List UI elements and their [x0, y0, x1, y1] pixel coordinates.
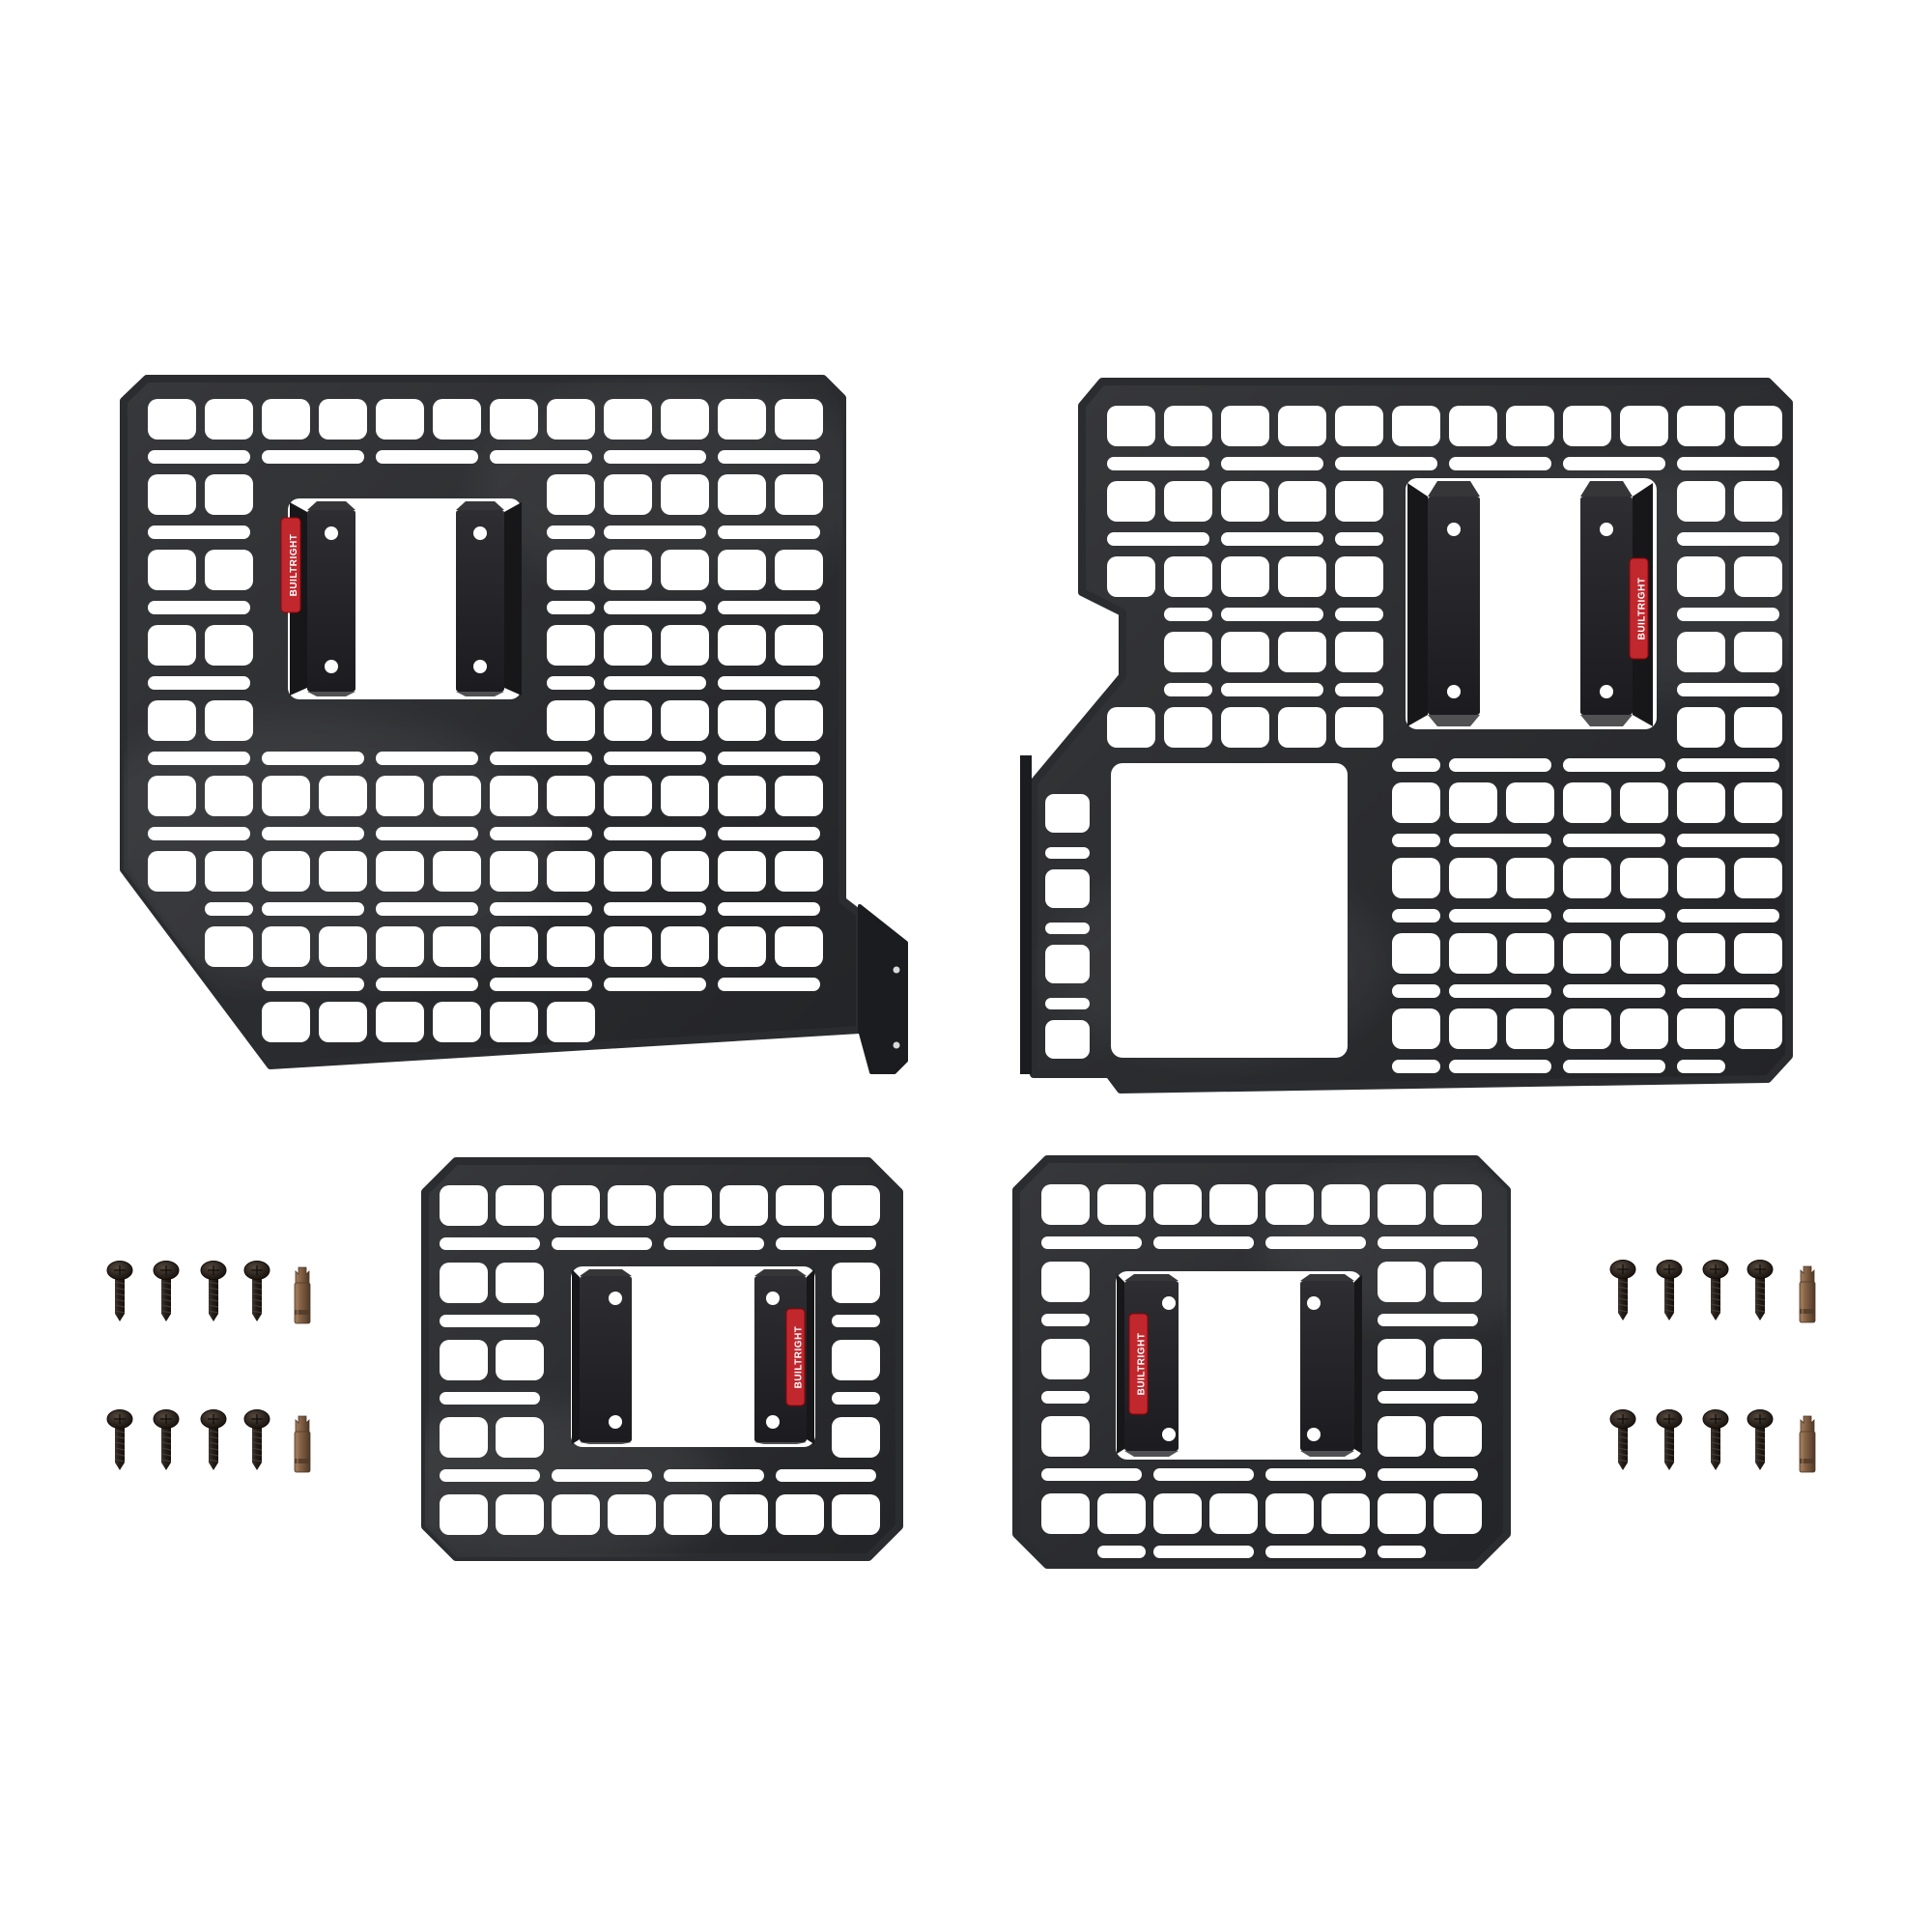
molle-hole — [1392, 406, 1440, 446]
molle-slot — [718, 601, 820, 614]
mounting-bracket: BUILTRIGHT — [281, 501, 355, 696]
molle-hole — [319, 776, 367, 816]
bracket-bolt-hole — [1162, 1428, 1176, 1441]
molle-hole — [496, 1263, 544, 1303]
bracket-bolt-hole — [1600, 523, 1613, 536]
hardware-cluster-left — [107, 1262, 310, 1473]
molle-slot — [1335, 608, 1383, 621]
molle-hole — [1734, 858, 1782, 898]
molle-slot — [1335, 532, 1383, 546]
molle-hole — [661, 700, 709, 741]
molle-hole — [205, 700, 253, 741]
molle-slot — [1265, 1236, 1366, 1249]
molle-hole — [1378, 1262, 1426, 1302]
molle-hole — [262, 851, 310, 892]
mounting-screw — [244, 1262, 270, 1322]
molle-hole — [319, 926, 367, 967]
molle-hole — [661, 474, 709, 515]
molle-slot — [1265, 1468, 1366, 1481]
molle-slot — [148, 827, 250, 840]
mounting-bracket: BUILTRIGHT — [754, 1269, 814, 1444]
molle-hole — [552, 1494, 600, 1535]
molle-slot — [718, 827, 820, 840]
molle-hole — [775, 776, 823, 816]
molle-hole — [1164, 707, 1212, 748]
mounting-screw — [107, 1410, 132, 1471]
molle-slot — [604, 601, 706, 614]
molle-hole — [661, 550, 709, 590]
molle-slot — [1107, 532, 1209, 546]
molle-slot — [1221, 608, 1323, 621]
molle-hole — [718, 399, 766, 440]
molle-hole — [1221, 707, 1269, 748]
torx-driver-bit — [295, 1267, 310, 1323]
molle-slot — [1677, 457, 1779, 470]
flange-hole — [894, 1042, 900, 1049]
molle-hole — [1506, 782, 1554, 823]
molle-hole — [1563, 782, 1611, 823]
molle-panel-bottom-left: BUILTRIGHT — [357, 1161, 899, 1570]
molle-hole — [148, 399, 196, 440]
molle-slot — [1335, 683, 1383, 696]
molle-panel-top-right: BUILTRIGHT — [1020, 382, 1845, 1090]
molle-slot — [1164, 683, 1212, 696]
mounting-screw — [154, 1262, 179, 1322]
molle-hole — [776, 1185, 824, 1226]
bracket-bolt-hole — [1600, 685, 1613, 698]
mounting-screw — [154, 1410, 179, 1471]
molle-hole — [1677, 858, 1725, 898]
molle-hole — [775, 474, 823, 515]
bracket-bolt-hole — [325, 526, 338, 540]
mounting-bracket: BUILTRIGHT — [1580, 481, 1653, 726]
molle-slot — [490, 752, 592, 765]
molle-hole — [1677, 556, 1725, 597]
molle-hole — [1164, 406, 1212, 446]
molle-slot — [1221, 683, 1323, 696]
molle-slot — [440, 1315, 540, 1327]
molle-hole — [1506, 1008, 1554, 1049]
molle-slot — [148, 450, 250, 464]
molle-hole — [1449, 406, 1497, 446]
molle-hole — [1563, 406, 1611, 446]
molle-slot — [490, 978, 592, 991]
molle-hole — [1265, 1493, 1314, 1534]
bracket-bolt-hole — [1307, 1296, 1321, 1310]
molle-hole — [440, 1494, 488, 1535]
molle-hole — [547, 851, 595, 892]
molle-slot — [262, 978, 364, 991]
molle-hole — [1378, 1339, 1426, 1379]
molle-hole — [1506, 406, 1554, 446]
molle-hole — [148, 776, 196, 816]
molle-slot — [1378, 1236, 1478, 1249]
molle-hole — [440, 1340, 488, 1380]
molle-slot — [1677, 1060, 1725, 1073]
mounting-bracket — [456, 501, 522, 696]
molle-hole — [604, 700, 652, 741]
bracket-bolt-hole — [609, 1415, 622, 1429]
molle-hole — [1335, 632, 1383, 672]
mounting-screw — [201, 1410, 226, 1471]
molle-slot — [1221, 532, 1323, 546]
molle-hole — [661, 399, 709, 440]
molle-hole — [205, 926, 253, 967]
molle-hole — [547, 926, 595, 967]
molle-hole — [490, 1002, 538, 1042]
molle-hole — [1434, 1262, 1482, 1302]
molle-hole — [376, 776, 424, 816]
molle-slot — [1045, 847, 1090, 859]
molle-slot — [1449, 1060, 1551, 1073]
molle-slot — [552, 1237, 652, 1250]
molle-slot — [604, 978, 706, 991]
scene-svg: BUILTRIGHTBUILTRIGHTBUILTRIGHTBUILTRIGHT — [0, 0, 1932, 1931]
molle-slot — [776, 1469, 876, 1482]
molle-slot — [664, 1237, 764, 1250]
molle-slot — [1563, 758, 1665, 772]
molle-hole — [1041, 1416, 1090, 1457]
molle-hole — [718, 851, 766, 892]
molle-hole — [376, 926, 424, 967]
molle-hole — [1378, 1416, 1426, 1457]
molle-hole — [1164, 632, 1212, 672]
molle-hole — [1734, 481, 1782, 522]
molle-hole — [440, 1185, 488, 1226]
molle-slot — [1677, 984, 1779, 998]
molle-hole — [1335, 481, 1383, 522]
torx-driver-bit — [295, 1416, 310, 1472]
molle-slot — [604, 450, 706, 464]
molle-slot — [262, 752, 364, 765]
builtright-label-text: BUILTRIGHT — [289, 534, 299, 597]
panel-cutout — [1111, 763, 1348, 1058]
molle-slot — [1097, 1546, 1146, 1558]
molle-hole — [1378, 1493, 1426, 1534]
molle-hole — [1677, 933, 1725, 974]
molle-slot — [1449, 909, 1551, 923]
mounting-bracket — [572, 1269, 632, 1444]
mounting-screw — [1657, 1261, 1682, 1321]
molle-hole — [1620, 858, 1668, 898]
molle-hole — [661, 625, 709, 666]
molle-hole — [775, 700, 823, 741]
molle-slot — [1045, 998, 1090, 1009]
molle-hole — [1209, 1493, 1258, 1534]
molle-hole — [440, 1263, 488, 1303]
mounting-screw — [1610, 1261, 1635, 1321]
molle-hole — [718, 474, 766, 515]
molle-slot — [490, 827, 592, 840]
mounting-screw — [1747, 1410, 1773, 1471]
flange-hole — [894, 967, 900, 974]
molle-hole — [1449, 933, 1497, 974]
molle-hole — [1506, 858, 1554, 898]
molle-slot — [776, 1237, 876, 1250]
molle-hole — [148, 851, 196, 892]
molle-hole — [1278, 632, 1326, 672]
molle-hole — [1449, 1008, 1497, 1049]
molle-hole — [1563, 858, 1611, 898]
mounting-screw — [1703, 1261, 1728, 1321]
molle-hole — [1097, 1493, 1146, 1534]
molle-slot — [1677, 532, 1779, 546]
molle-hole — [1164, 481, 1212, 522]
molle-slot — [148, 601, 250, 614]
molle-slot — [1265, 1546, 1366, 1558]
molle-hole — [664, 1494, 712, 1535]
molle-hole — [1265, 1184, 1314, 1225]
molle-slot — [1392, 1060, 1440, 1073]
molle-hole — [490, 776, 538, 816]
molle-hole — [720, 1185, 768, 1226]
molle-hole — [1620, 406, 1668, 446]
builtright-label-text: BUILTRIGHT — [1637, 578, 1648, 640]
molle-slot — [1392, 758, 1440, 772]
molle-slot — [1677, 834, 1779, 847]
molle-hole — [490, 399, 538, 440]
molle-hole — [262, 776, 310, 816]
bracket-bolt-hole — [1307, 1428, 1321, 1441]
molle-hole — [1107, 406, 1155, 446]
molle-slot — [718, 752, 820, 765]
molle-hole — [1041, 1493, 1090, 1534]
molle-slot — [376, 450, 478, 464]
molle-hole — [496, 1417, 544, 1458]
molle-hole — [1221, 556, 1269, 597]
molle-hole — [1677, 481, 1725, 522]
molle-panel-bottom-right: BUILTRIGHT — [1016, 1159, 1594, 1565]
molle-slot — [148, 676, 250, 690]
molle-hole — [1278, 707, 1326, 748]
molle-hole — [604, 851, 652, 892]
bracket-bolt-hole — [1447, 685, 1461, 698]
molle-slot — [604, 827, 706, 840]
molle-hole — [775, 399, 823, 440]
molle-hole — [1221, 632, 1269, 672]
molle-hole — [433, 1002, 481, 1042]
builtright-label: BUILTRIGHT — [1630, 558, 1648, 659]
molle-hole — [1434, 1184, 1482, 1225]
molle-hole — [1392, 858, 1440, 898]
molle-slot — [1449, 758, 1551, 772]
molle-hole — [376, 1002, 424, 1042]
molle-hole — [1321, 1493, 1370, 1534]
molle-hole — [1620, 782, 1668, 823]
molle-slot — [1107, 457, 1209, 470]
molle-slot — [205, 902, 253, 916]
molle-slot — [1563, 1060, 1665, 1073]
molle-slot — [832, 1315, 880, 1327]
molle-hole — [1335, 406, 1383, 446]
molle-hole — [1677, 632, 1725, 672]
mounting-bracket: BUILTRIGHT — [1117, 1274, 1179, 1457]
molle-slot — [148, 752, 250, 765]
molle-hole — [148, 550, 196, 590]
molle-hole — [604, 550, 652, 590]
molle-slot — [1449, 834, 1551, 847]
molle-hole — [661, 926, 709, 967]
mounting-screw — [1657, 1410, 1682, 1471]
molle-hole — [547, 625, 595, 666]
molle-slot — [262, 827, 364, 840]
molle-hole — [433, 851, 481, 892]
molle-hole — [604, 776, 652, 816]
mounting-screw — [1747, 1261, 1773, 1321]
molle-slot — [376, 752, 478, 765]
molle-slot — [1563, 834, 1665, 847]
molle-slot — [604, 676, 706, 690]
molle-hole — [547, 474, 595, 515]
molle-hole — [1335, 707, 1383, 748]
molle-hole — [775, 550, 823, 590]
molle-slot — [376, 902, 478, 916]
molle-slot — [1378, 1391, 1478, 1404]
molle-slot — [1378, 1546, 1426, 1558]
molle-hole — [1734, 406, 1782, 446]
molle-hole — [1392, 1008, 1440, 1049]
molle-hole — [1734, 632, 1782, 672]
torx-driver-bit — [1800, 1266, 1815, 1322]
molle-slot — [1677, 758, 1779, 772]
molle-hole — [608, 1185, 656, 1226]
molle-slot — [1153, 1546, 1254, 1558]
molle-slot — [1378, 1468, 1478, 1481]
molle-slot — [1041, 1391, 1090, 1404]
molle-slot — [1563, 909, 1665, 923]
molle-hole — [604, 926, 652, 967]
molle-hole — [376, 399, 424, 440]
molle-hole — [1677, 782, 1725, 823]
molle-hole — [433, 399, 481, 440]
molle-hole — [1449, 782, 1497, 823]
molle-hole — [1378, 1184, 1426, 1225]
mounting-bracket — [1300, 1274, 1362, 1457]
molle-hole — [1278, 556, 1326, 597]
molle-hole — [1221, 406, 1269, 446]
molle-slot — [718, 978, 820, 991]
molle-slot — [1392, 909, 1440, 923]
molle-hole — [1734, 707, 1782, 748]
molle-hole — [775, 851, 823, 892]
molle-slot — [1392, 984, 1440, 998]
molle-hole — [1449, 858, 1497, 898]
molle-hole — [1620, 933, 1668, 974]
molle-slot — [604, 902, 706, 916]
bracket-bolt-hole — [766, 1415, 780, 1429]
molle-hole — [832, 1185, 880, 1226]
molle-slot — [664, 1469, 764, 1482]
molle-slot — [1563, 984, 1665, 998]
torx-driver-bit — [1800, 1416, 1815, 1472]
molle-slot — [547, 676, 595, 690]
molle-hole — [319, 1002, 367, 1042]
molle-hole — [490, 851, 538, 892]
builtright-label: BUILTRIGHT — [1129, 1314, 1148, 1414]
molle-slot — [1449, 457, 1551, 470]
molle-hole — [148, 625, 196, 666]
molle-slot — [1335, 457, 1437, 470]
bracket-bolt-hole — [325, 660, 338, 673]
mounting-screw — [1703, 1410, 1728, 1471]
molle-hole — [1041, 1184, 1090, 1225]
bracket-bolt-hole — [1162, 1296, 1176, 1310]
molle-hole — [1209, 1184, 1258, 1225]
molle-hole — [148, 474, 196, 515]
molle-slot — [262, 450, 364, 464]
molle-slot — [1164, 608, 1212, 621]
molle-hole — [1734, 782, 1782, 823]
molle-hole — [1506, 933, 1554, 974]
molle-hole — [496, 1185, 544, 1226]
molle-hole — [552, 1185, 600, 1226]
molle-slot — [718, 525, 820, 539]
bracket-bolt-hole — [473, 526, 487, 540]
molle-hole — [440, 1417, 488, 1458]
molle-hole — [205, 550, 253, 590]
molle-hole — [718, 776, 766, 816]
mounting-screw — [107, 1262, 132, 1322]
molle-slot — [1392, 834, 1440, 847]
molle-hole — [1677, 707, 1725, 748]
molle-slot — [718, 450, 820, 464]
molle-hole — [1041, 1339, 1090, 1379]
molle-hole — [1278, 481, 1326, 522]
molle-hole — [1153, 1493, 1202, 1534]
molle-hole — [547, 1002, 595, 1042]
molle-hole — [832, 1263, 880, 1303]
molle-hole — [1734, 556, 1782, 597]
molle-hole — [433, 926, 481, 967]
molle-hole — [1392, 782, 1440, 823]
molle-hole — [1107, 707, 1155, 748]
builtright-label-text: BUILTRIGHT — [794, 1326, 805, 1389]
molle-hole — [262, 1002, 310, 1042]
molle-hole — [262, 399, 310, 440]
molle-hole — [319, 399, 367, 440]
hardware-cluster-right — [1610, 1261, 1815, 1473]
molle-hole — [1434, 1416, 1482, 1457]
molle-slot — [552, 1469, 652, 1482]
molle-slot — [440, 1392, 540, 1405]
molle-slot — [1153, 1236, 1254, 1249]
molle-slot — [547, 601, 595, 614]
molle-hole — [205, 399, 253, 440]
molle-slot — [1041, 1314, 1090, 1326]
molle-hole — [205, 474, 253, 515]
mounting-screw — [201, 1262, 226, 1322]
molle-hole — [775, 625, 823, 666]
molle-hole — [205, 625, 253, 666]
molle-slot — [148, 525, 250, 539]
molle-hole — [718, 700, 766, 741]
molle-hole — [720, 1494, 768, 1535]
bracket-bolt-hole — [1447, 523, 1461, 536]
molle-hole — [1392, 933, 1440, 974]
molle-hole — [1563, 933, 1611, 974]
molle-hole — [664, 1185, 712, 1226]
molle-hole — [1734, 1008, 1782, 1049]
builtright-label-text: BUILTRIGHT — [1137, 1333, 1148, 1396]
molle-hole — [1335, 556, 1383, 597]
molle-hole — [661, 851, 709, 892]
molle-slot — [1153, 1468, 1254, 1481]
builtright-label: BUILTRIGHT — [281, 518, 300, 612]
molle-hole — [262, 926, 310, 967]
molle-hole — [718, 550, 766, 590]
molle-hole — [1107, 481, 1155, 522]
molle-slot — [1378, 1314, 1478, 1326]
